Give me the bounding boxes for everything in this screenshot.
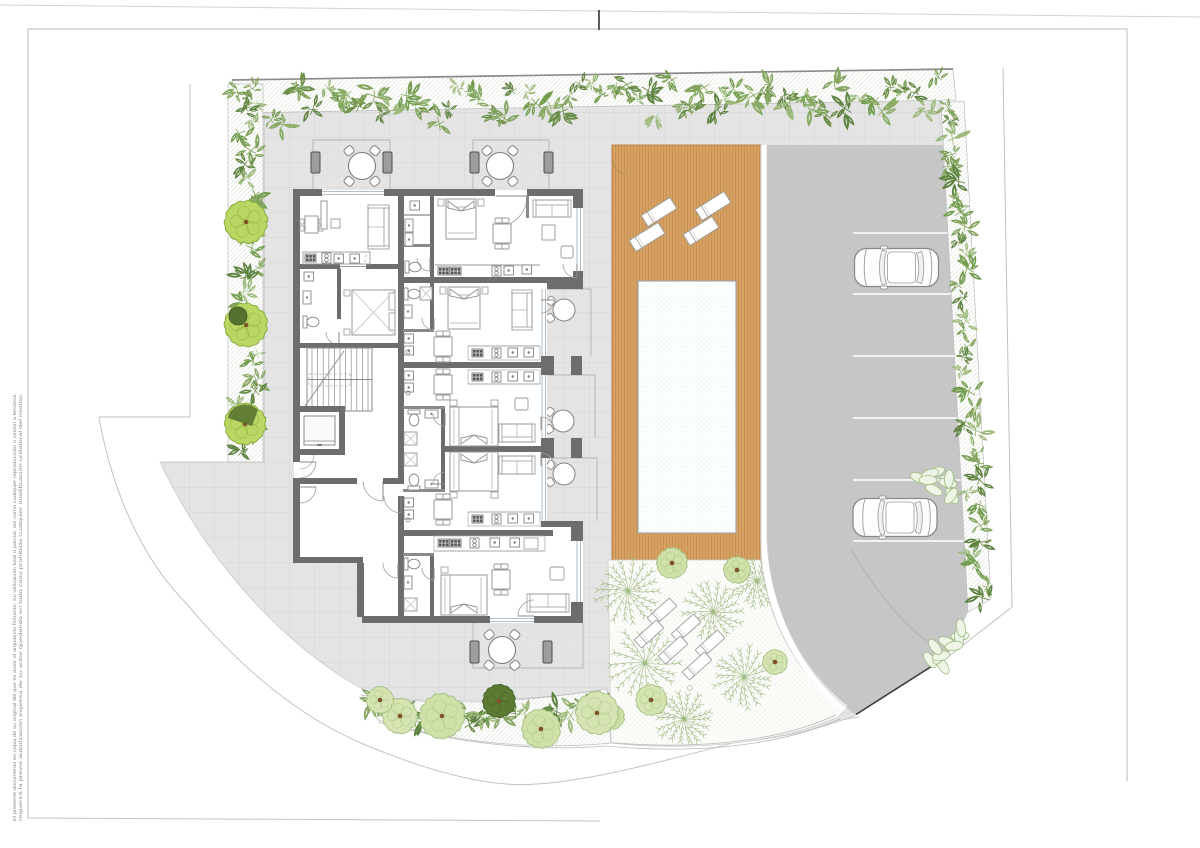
svg-text:El presente documento es copia: El presente documento es copia de su ori…	[12, 393, 17, 821]
svg-text:requerirá la previa autorizaci: requerirá la previa autorización expresa…	[18, 393, 23, 821]
